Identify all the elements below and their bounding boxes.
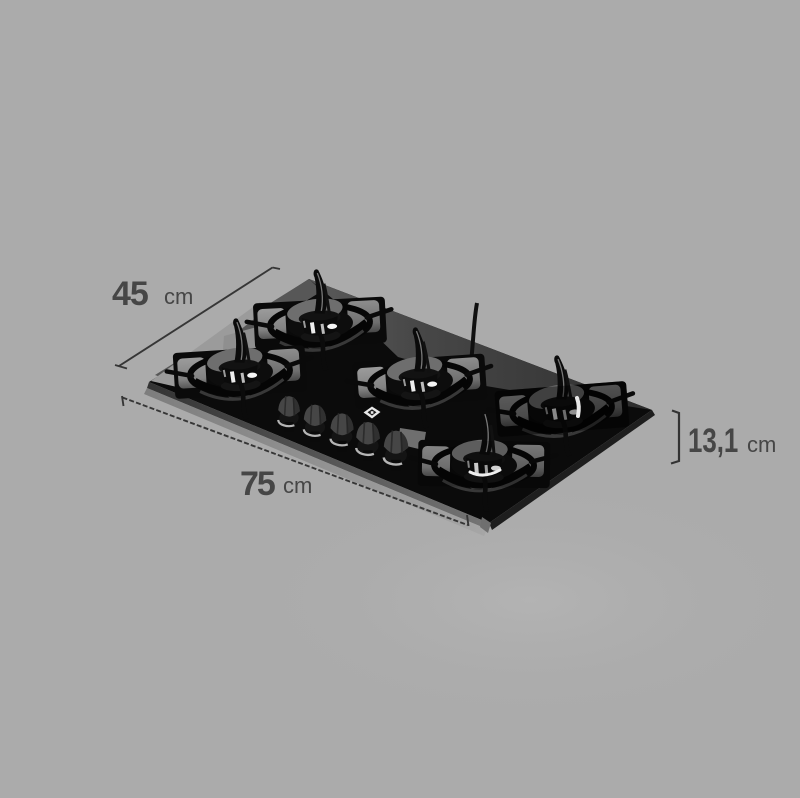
- svg-text:13,1: 13,1: [688, 423, 738, 460]
- svg-text:45: 45: [112, 275, 148, 313]
- svg-text:75: 75: [240, 465, 275, 503]
- svg-text:cm: cm: [164, 284, 193, 309]
- svg-text:cm: cm: [283, 473, 312, 498]
- svg-text:cm: cm: [747, 432, 776, 457]
